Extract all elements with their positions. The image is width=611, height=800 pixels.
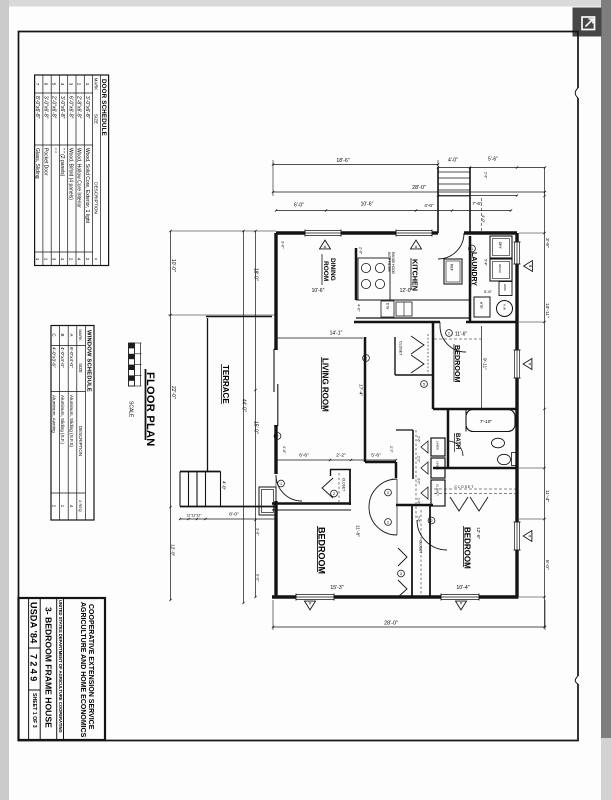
svg-text:2'-8": 2'-8" xyxy=(484,172,488,178)
svg-text:4'-0": 4'-0" xyxy=(424,203,434,209)
svg-text:10'-6": 10'-6" xyxy=(361,202,374,208)
svg-text:15'-3": 15'-3" xyxy=(330,585,343,591)
svg-text:Aluminum, Sliding (S.F.S): Aluminum, Sliding (S.F.S) xyxy=(69,395,74,448)
svg-text:A: A xyxy=(527,362,532,365)
svg-text:Wood, Hollow Core Interior: Wood, Hollow Core Interior xyxy=(76,148,82,208)
svg-text:3'-0": 3'-0" xyxy=(281,241,285,249)
svg-text:DINING: DINING xyxy=(329,258,336,281)
svg-text:2: 2 xyxy=(448,332,450,336)
svg-text:TERRACE: TERRACE xyxy=(221,365,230,404)
svg-text:WITH FILTER: WITH FILTER xyxy=(387,252,391,272)
svg-text:2: 2 xyxy=(77,83,82,86)
svg-text:6'-0"x6'-8": 6'-0"x6'-8" xyxy=(67,96,73,119)
svg-text:3'-6": 3'-6" xyxy=(256,528,260,536)
svg-text:15'-0": 15'-0" xyxy=(253,421,259,434)
svg-text:4'-0": 4'-0" xyxy=(448,158,458,164)
svg-text:5'-4": 5'-4" xyxy=(484,259,488,267)
svg-text:7'-10": 7'-10" xyxy=(480,419,493,425)
svg-text:3: 3 xyxy=(400,572,402,576)
svg-text:AGRICULTURE AND HOME ECONOMICS: AGRICULTURE AND HOME ECONOMICS xyxy=(79,602,86,738)
svg-text:7249: 7249 xyxy=(29,654,39,684)
svg-text:Aluminum, Awning: Aluminum, Awning xyxy=(52,395,57,433)
svg-text:14'-1": 14'-1" xyxy=(330,331,343,337)
svg-text:9'-11": 9'-11" xyxy=(482,358,488,370)
svg-text:DRY: DRY xyxy=(498,242,502,250)
svg-text:Pocket Door: Pocket Door xyxy=(42,148,48,176)
svg-text:2'-0": 2'-0" xyxy=(417,456,421,462)
svg-text:4: 4 xyxy=(77,258,82,261)
svg-text:6'-0": 6'-0" xyxy=(256,574,260,582)
svg-text:18'-0": 18'-0" xyxy=(253,268,259,281)
svg-text:28'-0": 28'-0" xyxy=(384,621,398,627)
svg-text:7: 7 xyxy=(35,83,40,86)
svg-text:4'-0"x3'-6": 4'-0"x3'-6" xyxy=(52,347,57,368)
svg-text:10'-11": 10'-11" xyxy=(544,303,550,318)
svg-text:2'-8"x6'-8": 2'-8"x6'-8" xyxy=(76,96,82,119)
svg-text:2: 2 xyxy=(333,492,335,496)
svg-text:ROOM: ROOM xyxy=(322,261,329,281)
svg-text:SIZE: SIZE xyxy=(93,114,98,124)
svg-text:KITCHEN: KITCHEN xyxy=(411,259,420,291)
svg-text:CLOSET: CLOSET xyxy=(436,484,440,496)
svg-text:2: 2 xyxy=(365,357,367,361)
svg-text:5'-6": 5'-6" xyxy=(488,157,498,163)
svg-text:3'-0"x6'-8": 3'-0"x6'-8" xyxy=(59,96,65,119)
svg-text:2: 2 xyxy=(387,521,389,525)
svg-text:DESCRIPTION: DESCRIPTION xyxy=(93,182,98,213)
svg-text:1: 1 xyxy=(280,482,282,486)
svg-text:7: 7 xyxy=(276,435,278,439)
svg-text:6'-6": 6'-6" xyxy=(299,453,309,459)
svg-text:3: 3 xyxy=(52,258,57,261)
svg-text:3'-9": 3'-9" xyxy=(544,238,550,248)
svg-text:4'-0": 4'-0" xyxy=(357,304,361,312)
svg-text:2'-0"x6'-8": 2'-0"x6'-8" xyxy=(51,96,57,119)
svg-text:A: A xyxy=(308,601,311,606)
svg-text:1: 1 xyxy=(60,258,65,261)
svg-text:22'-0": 22'-0" xyxy=(170,386,176,399)
svg-text:2: 2 xyxy=(85,258,90,261)
svg-text:Glass, Sliding: Glass, Sliding xyxy=(34,148,40,179)
svg-text:COOPERATIVE EXTENSION SERVICE: COOPERATIVE EXTENSION SERVICE xyxy=(87,604,94,730)
svg-text:USDA '84: USDA '84 xyxy=(29,602,39,643)
svg-text:18'-6": 18'-6" xyxy=(336,158,349,164)
svg-text:D W: D W xyxy=(386,303,390,309)
svg-text:2: 2 xyxy=(68,258,73,261)
svg-text:2'-2": 2'-2" xyxy=(336,453,346,459)
svg-text:1'-6": 1'-6" xyxy=(417,498,421,504)
svg-text:Wood, Solid Core, Exterior, 1: Wood, Solid Core, Exterior, 1 light xyxy=(84,148,90,224)
svg-text:DESCRIPTION: DESCRIPTION xyxy=(78,426,83,456)
svg-text:# REQ: # REQ xyxy=(78,500,82,511)
svg-text:8'-0": 8'-0" xyxy=(229,512,239,518)
svg-text:2: 2 xyxy=(430,519,432,523)
svg-text:SIZE: SIZE xyxy=(78,363,83,373)
svg-text:CLOSET: CLOSET xyxy=(342,478,346,491)
svg-text:2'-6": 2'-6" xyxy=(417,436,421,442)
svg-text:DWN: DWN xyxy=(503,284,507,291)
svg-text:BEDROOM: BEDROOM xyxy=(317,527,327,574)
svg-text:” ” (2 panels): ” ” (2 panels) xyxy=(59,148,65,177)
svg-text:3'-0": 3'-0" xyxy=(417,478,421,484)
svg-text:11'-8": 11'-8" xyxy=(355,525,361,537)
svg-text:UNITED STATES DEPARTMENT OF AG: UNITED STATES DEPARTMENT OF AGRICULTURE … xyxy=(58,600,63,733)
svg-text:6'-0": 6'-0" xyxy=(294,203,304,209)
svg-text:1: 1 xyxy=(43,258,48,261)
svg-text:5: 5 xyxy=(52,83,57,86)
svg-text:LINEN: LINEN xyxy=(436,461,440,470)
svg-text:10'-4": 10'-4" xyxy=(456,585,469,591)
svg-text:6'-0"x4'-0": 6'-0"x4'-0" xyxy=(69,347,74,368)
svg-text:MARK: MARK xyxy=(93,78,98,90)
svg-text:” ”: ” ” xyxy=(51,148,57,153)
svg-text:A: A xyxy=(459,601,462,606)
svg-text:WINDOW SCHEDULE: WINDOW SCHEDULE xyxy=(85,330,91,392)
svg-text:4: 4 xyxy=(60,83,65,86)
svg-text:A: A xyxy=(527,534,532,537)
svg-text:B: B xyxy=(527,264,532,267)
svg-text:4'-0"x4'-0": 4'-0"x4'-0" xyxy=(60,347,65,368)
svg-text:12'-0": 12'-0" xyxy=(400,288,413,294)
svg-text:8'-0"x6'-8": 8'-0"x6'-8" xyxy=(34,96,40,119)
svg-text:HTR: HTR xyxy=(479,302,483,309)
svg-text:2'-7": 2'-7" xyxy=(389,446,393,454)
svg-text:6: 6 xyxy=(43,83,48,86)
svg-text:10'-6": 10'-6" xyxy=(312,288,325,294)
svg-text:CLOSET: CLOSET xyxy=(399,341,403,356)
svg-text:DOOR SCHEDULE: DOOR SCHEDULE xyxy=(100,79,107,136)
svg-text:5'-6": 5'-6" xyxy=(371,453,381,459)
svg-text:28'-0": 28'-0" xyxy=(412,185,426,191)
svg-text:44'-0": 44'-0" xyxy=(241,399,247,412)
svg-text:1: 1 xyxy=(471,247,473,251)
svg-text:A: A xyxy=(324,244,327,249)
svg-text:B: B xyxy=(60,334,65,337)
svg-text:CLOSET: CLOSET xyxy=(419,540,423,553)
svg-text:12"12"12": 12"12"12" xyxy=(187,514,203,518)
svg-text:3'-0"x6'-8": 3'-0"x6'-8" xyxy=(42,96,48,119)
svg-text:BATH: BATH xyxy=(454,433,460,449)
svg-text:11'-6": 11'-6" xyxy=(455,332,468,338)
svg-text:H.W: H.W xyxy=(503,304,507,310)
svg-text:12'-6": 12'-6" xyxy=(475,527,481,540)
svg-text:C L O S E T: C L O S E T xyxy=(454,485,474,489)
svg-text:1: 1 xyxy=(35,258,40,261)
svg-text:SHEET 1 OF 3: SHEET 1 OF 3 xyxy=(31,693,37,728)
svg-text:A: A xyxy=(69,334,74,337)
svg-text:5: 5 xyxy=(423,383,425,387)
svg-text:3'-0"x6'-8": 3'-0"x6'-8" xyxy=(84,96,90,119)
svg-text:REF: REF xyxy=(450,264,454,271)
svg-text:7'-6": 7'-6" xyxy=(472,201,482,207)
svg-text:6'-0": 6'-0" xyxy=(544,560,550,570)
svg-text:Aluminum, Sliding (S.F.): Aluminum, Sliding (S.F.) xyxy=(60,395,65,444)
svg-text:C: C xyxy=(52,333,57,336)
svg-text:WASH: WASH xyxy=(498,264,502,273)
svg-text:17'-4": 17'-4" xyxy=(358,384,364,397)
svg-text:2'-0": 2'-0" xyxy=(359,247,363,255)
svg-text:MARK: MARK xyxy=(78,329,83,341)
svg-text:3- BEDROOM FRAME HOUSE: 3- BEDROOM FRAME HOUSE xyxy=(44,607,54,728)
svg-text:4'-0": 4'-0" xyxy=(222,481,227,491)
svg-text:10'-0": 10'-0" xyxy=(170,259,176,272)
svg-text:4'-6": 4'-6" xyxy=(282,446,286,454)
svg-text:LINEN: LINEN xyxy=(436,441,440,450)
svg-text:1: 1 xyxy=(85,83,90,86)
svg-text:2: 2 xyxy=(387,491,389,495)
svg-text:3: 3 xyxy=(68,83,73,86)
svg-text:12'-0": 12'-0" xyxy=(170,544,176,557)
svg-text:A: A xyxy=(415,244,418,249)
svg-text:11'-4": 11'-4" xyxy=(544,490,550,502)
svg-text:SCALE: SCALE xyxy=(128,401,134,418)
svg-text:5'-6": 5'-6" xyxy=(484,289,493,294)
svg-text:Wood, Bifold (4 panels): Wood, Bifold (4 panels) xyxy=(67,148,73,200)
